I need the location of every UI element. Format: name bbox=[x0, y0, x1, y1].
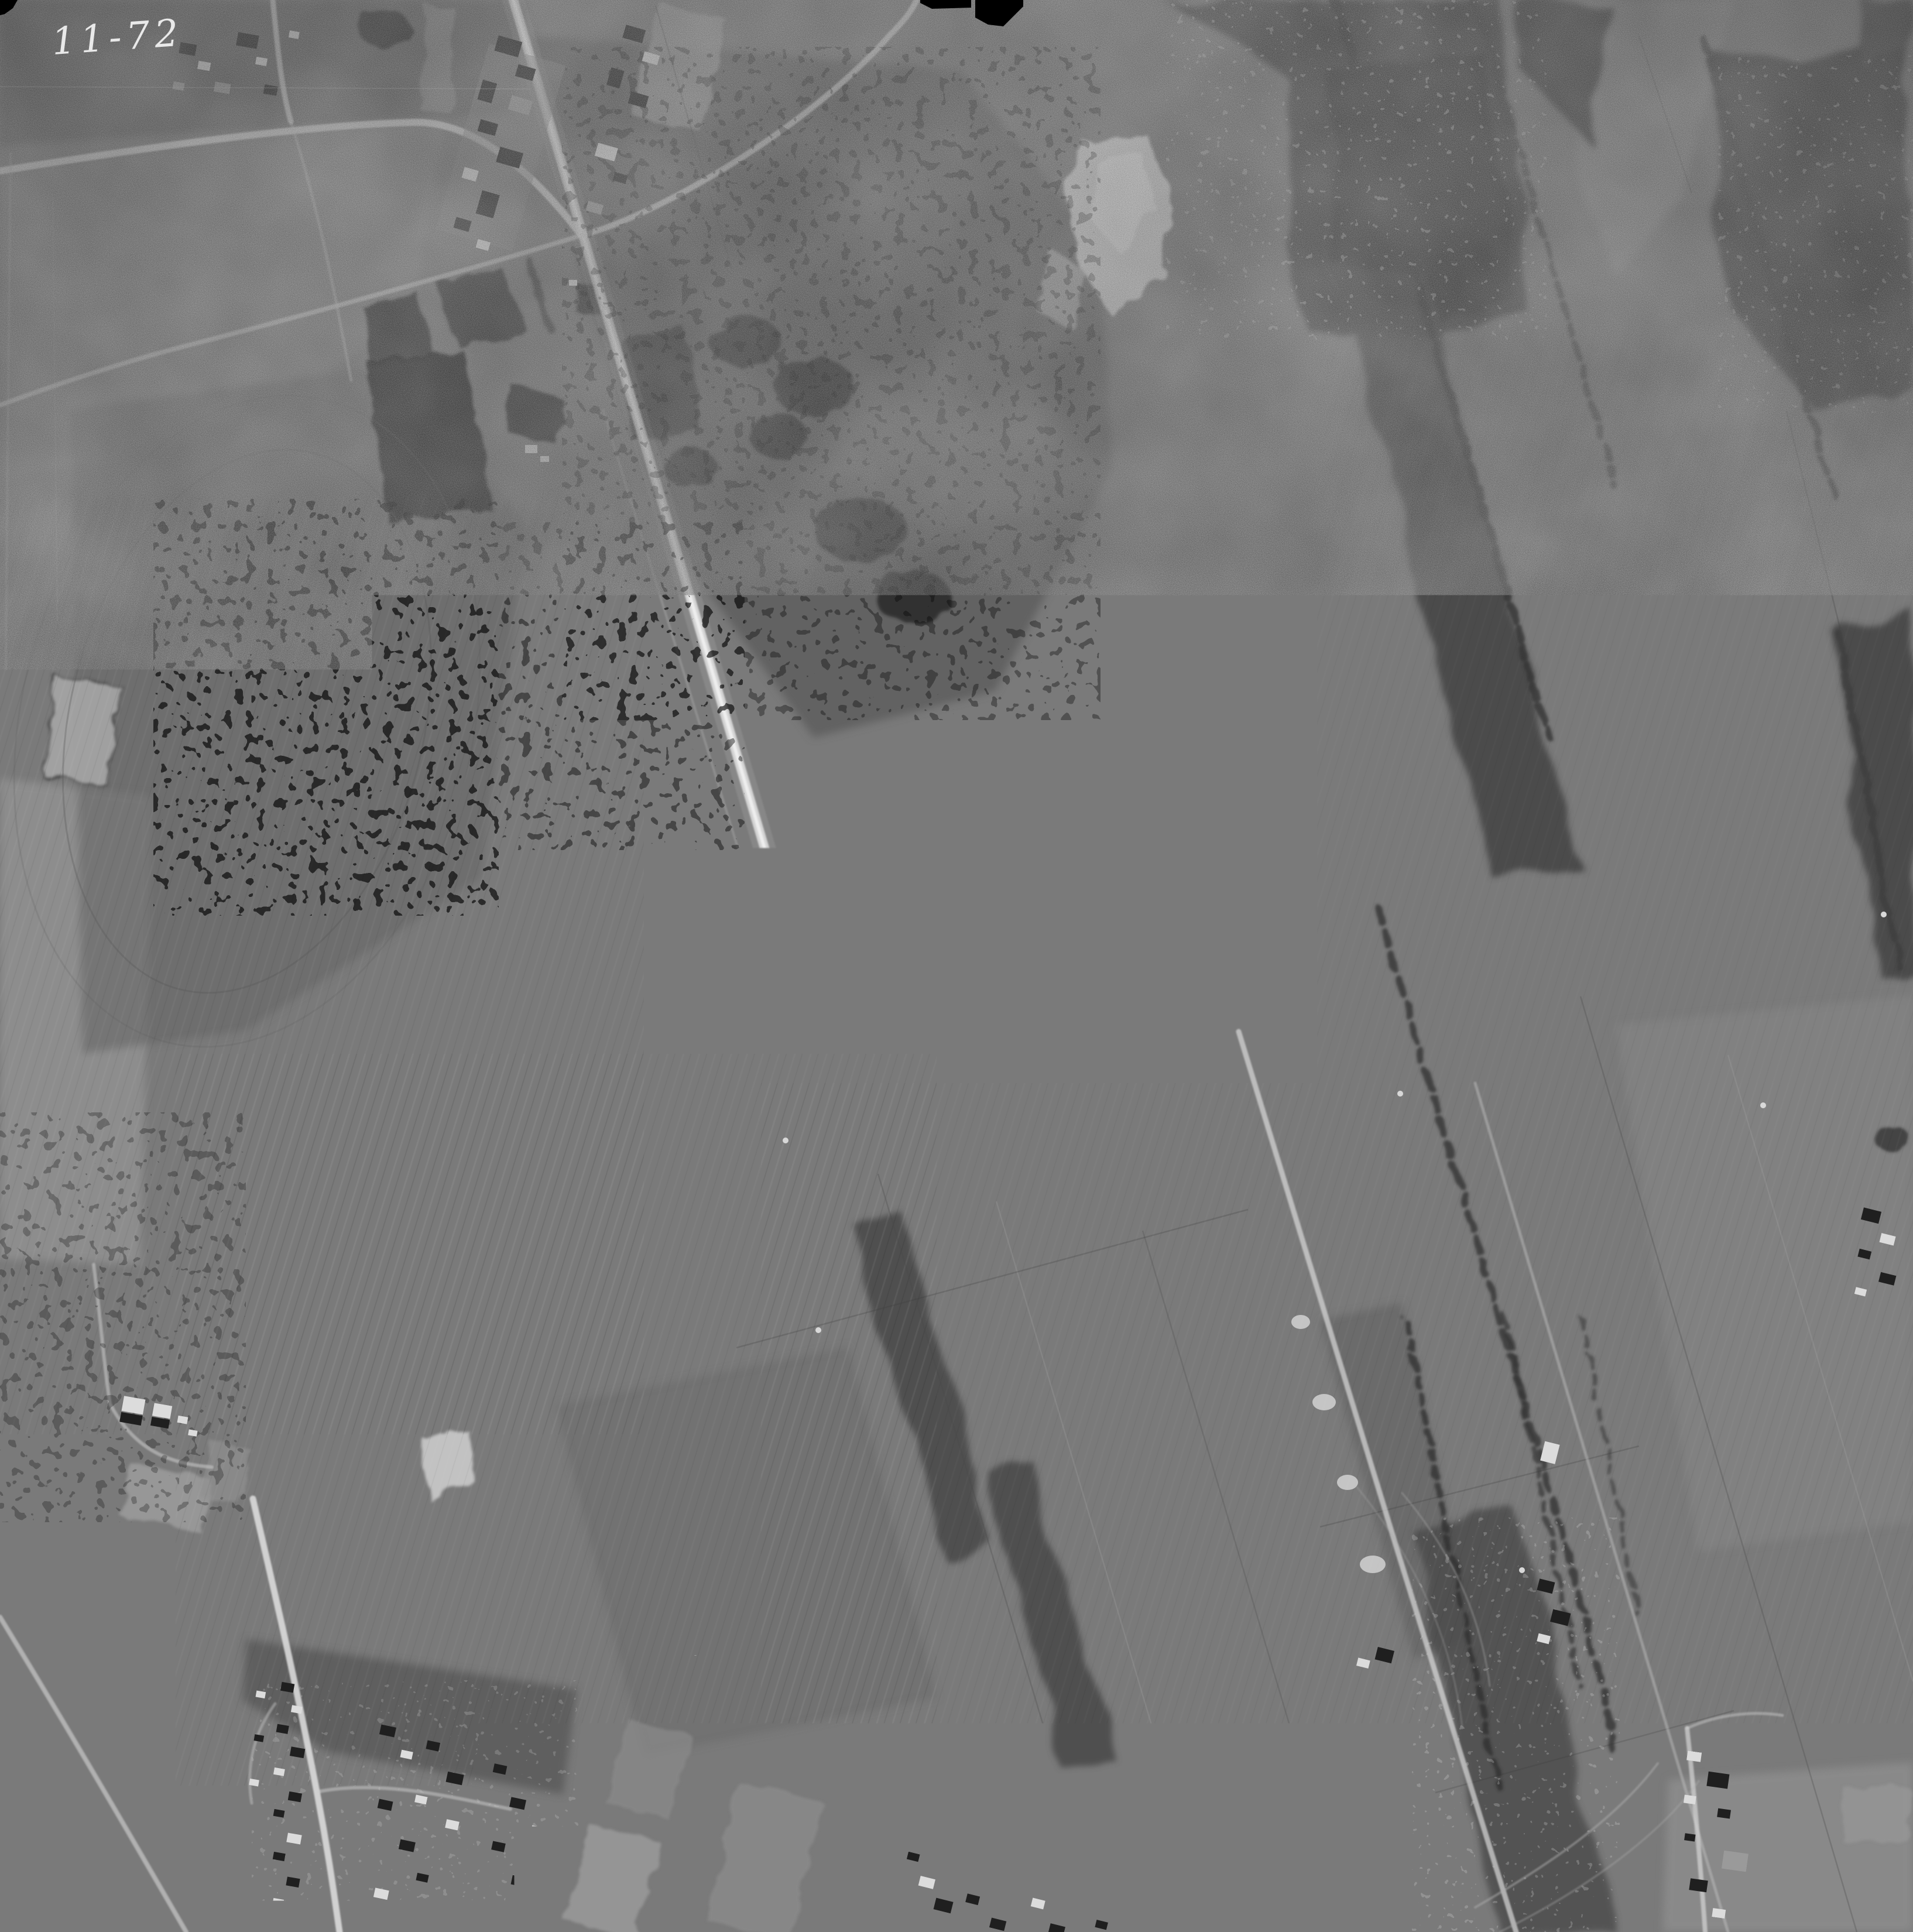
photo-canvas: 11-72 Archives de la Ville de Montréal bbox=[0, 0, 1913, 1932]
archives-watermark: Archives de la Ville de Montréal bbox=[1745, 1919, 1908, 1930]
film-grain-overlay bbox=[0, 0, 1913, 1932]
aerial-photograph: 11-72 Archives de la Ville de Montréal bbox=[0, 0, 1913, 1932]
frame-annotation: 11-72 bbox=[50, 12, 184, 64]
vignette bbox=[0, 0, 1913, 1932]
